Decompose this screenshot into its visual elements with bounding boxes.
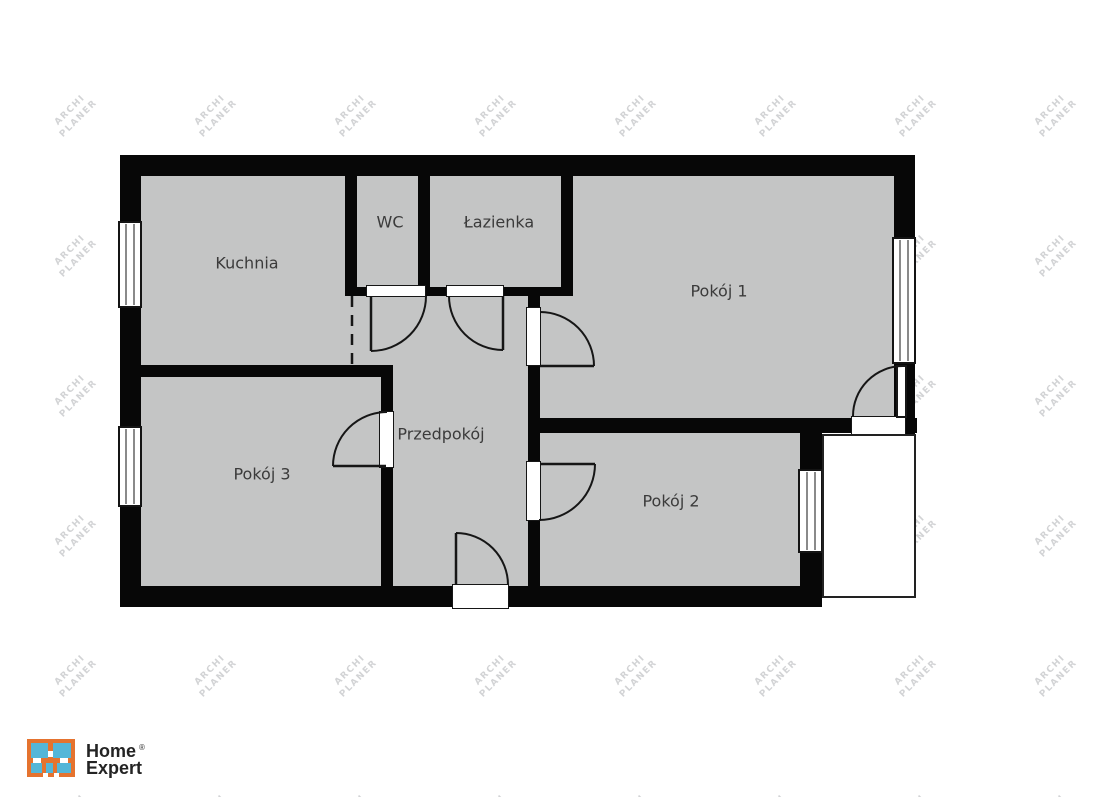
door-arc-lazienka: [449, 296, 503, 350]
door-arc-pokoj2: [539, 464, 595, 520]
door-arc-balcony: [853, 366, 903, 416]
home-expert-logo: Home® Expert: [27, 739, 145, 777]
room-label-pokoj2: Pokój 2: [642, 492, 699, 511]
room-label-przedpokoj: Przedpokój: [397, 425, 484, 444]
room-label-kuchnia: Kuchnia: [215, 254, 278, 273]
brand-name: Home® Expert: [86, 739, 145, 777]
room-label-lazienka: Łazienka: [464, 213, 534, 232]
door-arc-pokoj3: [333, 412, 387, 466]
registered-mark: ®: [139, 743, 145, 752]
brand-line2: Expert: [86, 760, 145, 777]
room-label-pokoj3: Pokój 3: [233, 465, 290, 484]
door-arc-wc: [371, 296, 426, 351]
apartment-floorplan: Kuchnia WC Łazienka Pokój 1 Przedpokój P…: [0, 0, 1100, 797]
room-label-pokoj1: Pokój 1: [690, 282, 747, 301]
door-arc-pokoj1: [540, 312, 594, 366]
floorplan-canvas: ARCHIPLANERARCHIPLANERARCHIPLANERARCHIPL…: [0, 0, 1100, 797]
door-arc-entrance: [456, 533, 508, 585]
door-swings: [0, 0, 1100, 797]
room-label-wc: WC: [377, 213, 404, 232]
floorplan-house-icon: [27, 739, 75, 777]
